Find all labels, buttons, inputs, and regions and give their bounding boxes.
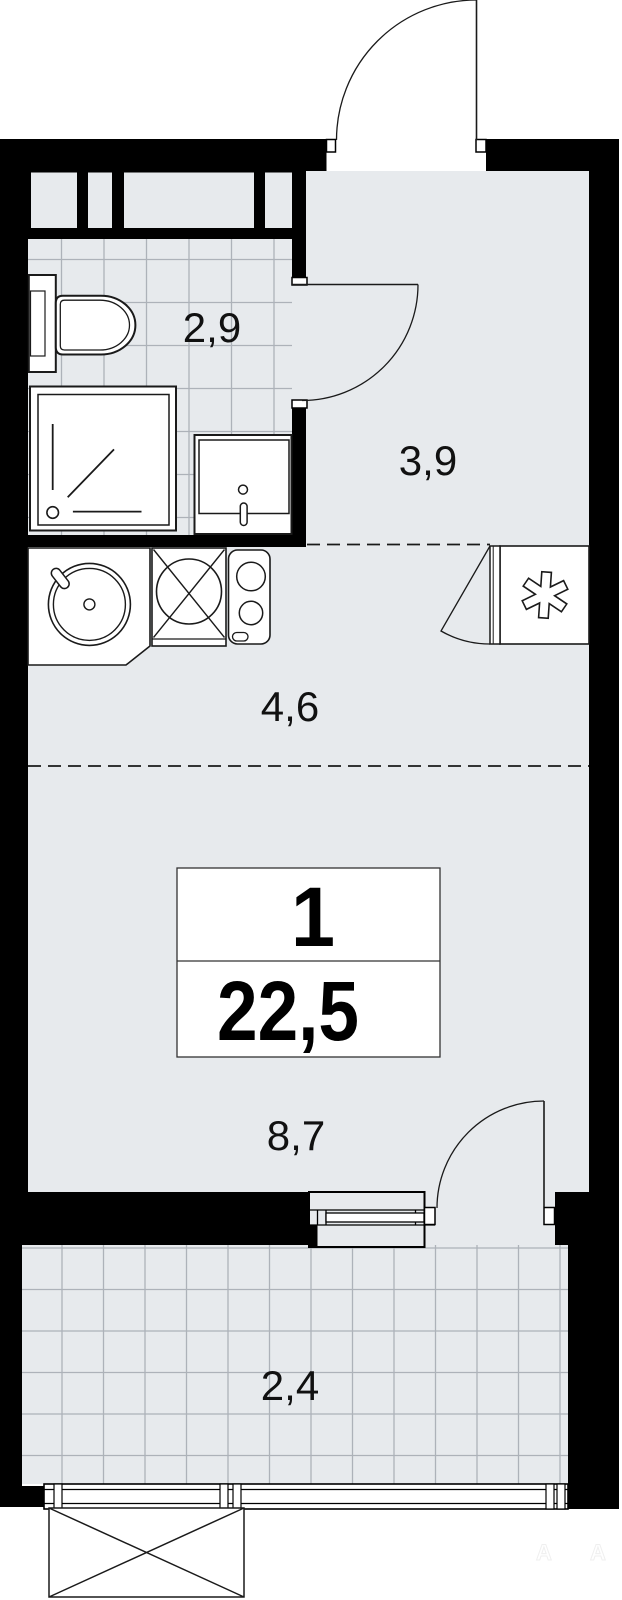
svg-text:3,9: 3,9	[399, 437, 457, 484]
svg-text:2,9: 2,9	[183, 304, 241, 351]
svg-text:4,6: 4,6	[261, 683, 319, 730]
svg-text:2,4: 2,4	[261, 1362, 319, 1409]
svg-text:1: 1	[291, 870, 335, 964]
svg-text:8,7: 8,7	[267, 1112, 325, 1159]
svg-text:A: A	[536, 1540, 552, 1565]
svg-text:22,5: 22,5	[217, 964, 359, 1058]
svg-text:A: A	[590, 1540, 606, 1565]
